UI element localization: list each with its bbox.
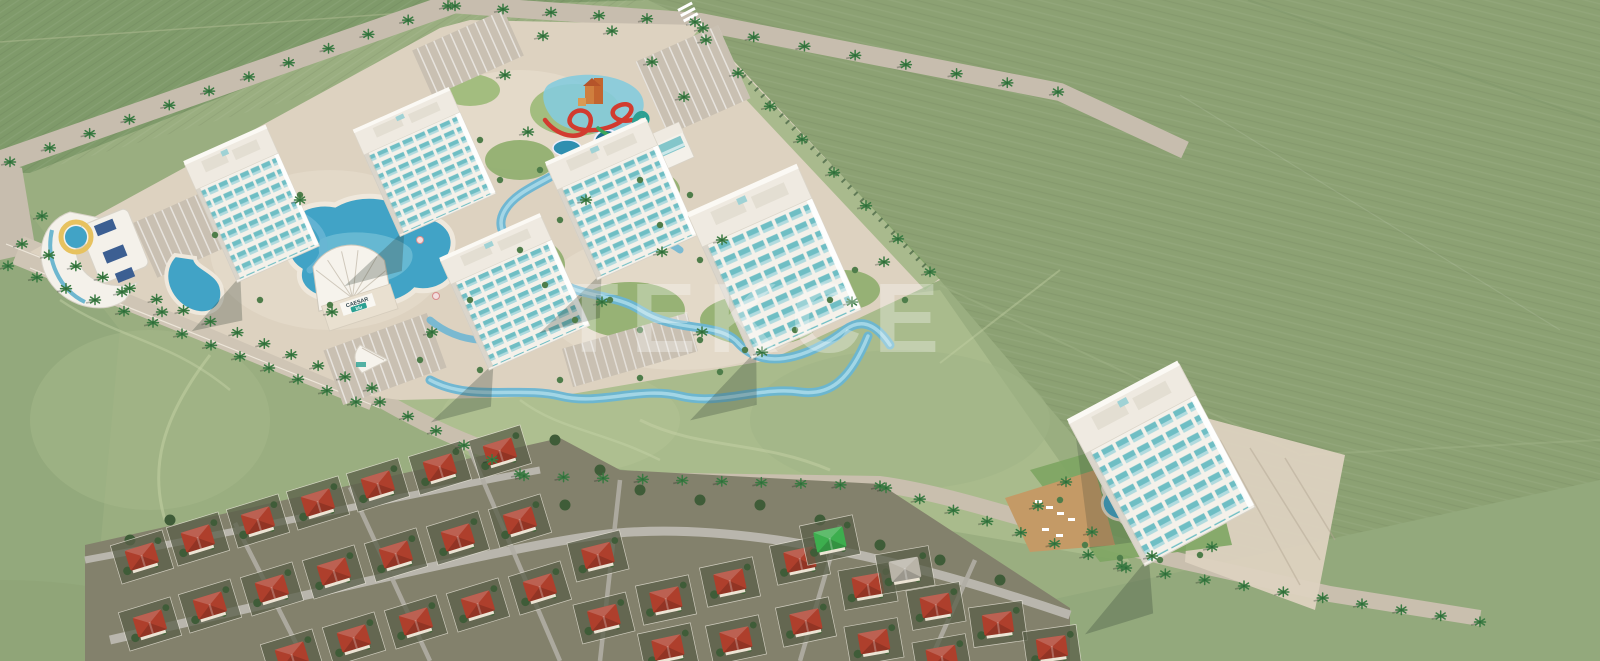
bush bbox=[467, 297, 473, 303]
bush bbox=[557, 217, 563, 223]
bush bbox=[657, 222, 663, 228]
bush bbox=[557, 377, 563, 383]
tree bbox=[995, 575, 1006, 586]
bush bbox=[687, 192, 693, 198]
bush bbox=[1057, 497, 1063, 503]
bush bbox=[497, 177, 503, 183]
bush bbox=[257, 297, 263, 303]
aerial-render: CAESAR blu TEKCE bbox=[0, 0, 1600, 661]
tree bbox=[695, 495, 706, 506]
bush bbox=[1117, 555, 1123, 561]
bush bbox=[637, 375, 643, 381]
tekce-watermark: TEKCE bbox=[559, 263, 951, 373]
bush bbox=[1157, 557, 1163, 563]
bush bbox=[477, 137, 483, 143]
tree bbox=[560, 500, 571, 511]
bush bbox=[1082, 542, 1088, 548]
resort-aerial-scene: CAESAR blu TEKCE bbox=[0, 0, 1600, 661]
bush bbox=[537, 167, 543, 173]
tree bbox=[635, 485, 646, 496]
tree bbox=[935, 555, 946, 566]
tree bbox=[875, 540, 886, 551]
villa-house bbox=[968, 600, 1027, 647]
tree bbox=[550, 435, 561, 446]
bush bbox=[212, 232, 218, 238]
tree bbox=[755, 500, 766, 511]
bush bbox=[417, 357, 423, 363]
bush bbox=[1197, 552, 1203, 558]
bush bbox=[477, 367, 483, 373]
beach-club-pool bbox=[65, 226, 87, 248]
bush bbox=[637, 177, 643, 183]
bush bbox=[517, 247, 523, 253]
bush bbox=[542, 282, 548, 288]
tree bbox=[165, 515, 176, 526]
